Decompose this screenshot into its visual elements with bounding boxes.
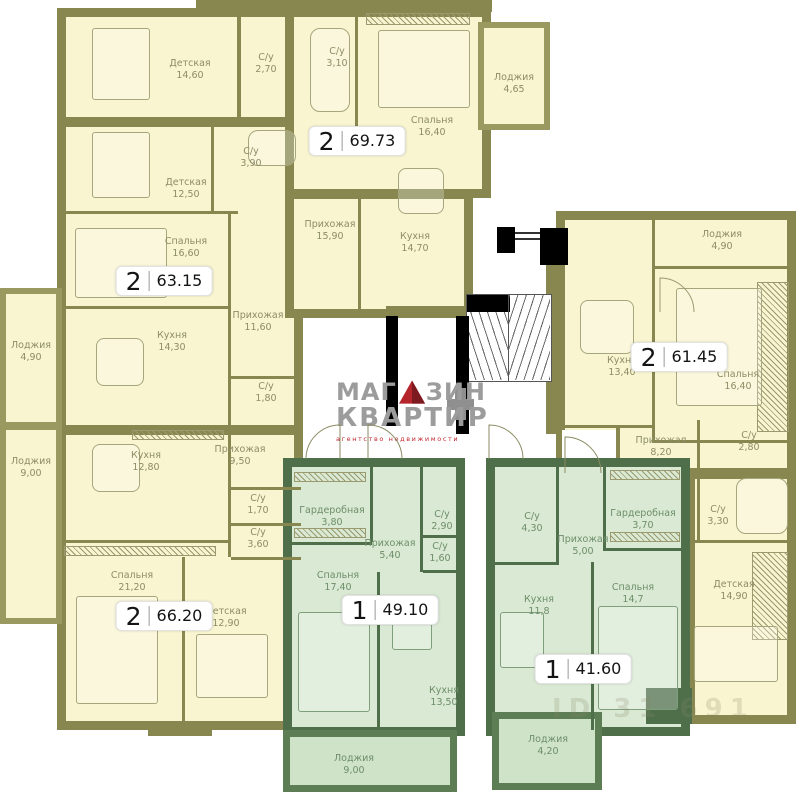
wall-partition (423, 535, 458, 538)
room-label-loggia: Лоджия9,00 (334, 753, 374, 777)
logo-text-zin: ЗИН (426, 380, 486, 404)
room-label-kitchen: Кухня13,50 (429, 685, 459, 709)
room-label-hallway: Прихожая9,50 (215, 444, 266, 468)
badge-divider (149, 606, 150, 626)
room-label-hallway: Прихожая15,90 (305, 219, 356, 243)
logo-line2: КВАРТИР (336, 404, 486, 433)
room-label-bathroom: С/у4,30 (521, 511, 542, 535)
badge-area: 61.45 (672, 349, 718, 365)
wall-partition (700, 471, 790, 474)
room-label-loggia: Лоджия4,20 (528, 734, 568, 758)
room-label-wardrobe: Гардеробная3,70 (610, 508, 676, 532)
wardrobe-hatch (294, 528, 366, 538)
furniture-bed (92, 28, 150, 100)
floor-plan: МАГ ЗИН КВАРТИР агентство недвижимости Д… (0, 0, 799, 800)
badge-area: 66.20 (157, 608, 203, 624)
room-label-hallway: Прихожая5,40 (365, 538, 416, 562)
apartment-badge-41-60[interactable]: 141.60 (535, 654, 632, 684)
wall-partition (603, 548, 687, 551)
furniture-table (96, 338, 144, 386)
room-label-hallway: Прихожая8,20 (636, 435, 687, 459)
furniture-bed (298, 612, 370, 712)
room-label-wardrobe: Гардеробная3,80 (299, 505, 365, 529)
badge-area: 69.73 (350, 133, 396, 149)
badge-room-count: 2 (319, 129, 335, 154)
room-label-kitchen: Кухня14,70 (400, 231, 430, 255)
room-label-bathroom: С/у2,80 (738, 430, 759, 454)
room-label-bathroom: С/у1,80 (255, 381, 276, 405)
furniture-bed (196, 634, 268, 698)
room-label-bedroom: Спальня21,20 (111, 570, 153, 594)
wall-partition (231, 523, 301, 526)
wall-partition (211, 127, 214, 213)
room-label-bathroom: С/у1,70 (247, 493, 268, 517)
apartment-badge-61-45[interactable]: 261.45 (631, 342, 728, 372)
badge-divider (149, 271, 150, 291)
loggia-9-00-left (0, 424, 62, 624)
badge-room-count: 2 (126, 269, 142, 294)
wall-partition (231, 487, 301, 490)
wardrobe-hatch (610, 470, 680, 480)
elevator-shaft-1 (497, 227, 515, 253)
wall-partition (493, 562, 559, 565)
room-label-kitchen: Кухня12,80 (131, 450, 161, 474)
wall-partition (420, 466, 423, 572)
stair-flight (467, 312, 508, 380)
badge-area: 49.10 (383, 602, 429, 618)
room-label-nursery: Детская12,50 (165, 177, 206, 201)
wall-partition (423, 570, 458, 573)
room-label-hallway: Прихожая5,00 (558, 534, 609, 558)
wardrobe-hatch (294, 472, 366, 482)
room-label-bathroom: С/у2,70 (255, 52, 276, 76)
wall-partition (66, 211, 238, 214)
furniture-table (398, 168, 444, 214)
badge-room-count: 1 (545, 657, 561, 682)
furniture-bathtub (736, 478, 788, 534)
badge-divider (568, 659, 569, 679)
room-label-bedroom: Спальня17,40 (317, 570, 359, 594)
room-label-bathroom: С/у3,10 (326, 46, 347, 70)
wall-partition (231, 557, 301, 560)
logo-line1: МАГ ЗИН (336, 380, 486, 404)
watermark: ID 31 691 (552, 694, 799, 724)
wall-partition (655, 266, 789, 269)
wall-partition (652, 220, 655, 440)
elevator-door-line (515, 238, 540, 240)
room-label-loggia: Лоджия4,65 (494, 72, 534, 96)
room-label-bathroom: С/у2,90 (431, 509, 452, 533)
furniture-bed (378, 30, 470, 108)
room-label-kitchen: Кухня14,30 (157, 330, 187, 354)
wardrobe-hatch (610, 532, 680, 542)
stair-divider (508, 295, 509, 381)
badge-divider (375, 600, 376, 620)
wardrobe-hatch (64, 546, 216, 556)
logo-text-mag: МАГ (336, 380, 397, 404)
room-label-nursery: Детская14,60 (169, 58, 210, 82)
badge-divider (342, 131, 343, 151)
room-label-bathroom: С/у3,90 (240, 146, 261, 170)
wall-partition (355, 17, 358, 129)
badge-area: 63.15 (157, 273, 203, 289)
wall-partition (66, 306, 228, 309)
room-label-kitchen: Кухня11,8 (524, 594, 554, 618)
furniture-bed (694, 626, 778, 682)
wardrobe-hatch (366, 13, 470, 25)
badge-area: 41.60 (576, 661, 622, 677)
badge-room-count: 1 (352, 598, 368, 623)
wall-partition (697, 420, 700, 542)
wall-partition (182, 557, 185, 723)
wall-partition (231, 376, 301, 379)
apartment-badge-63-15[interactable]: 263.15 (116, 266, 213, 296)
room-label-bathroom: С/у3,60 (247, 527, 268, 551)
wall-partition (695, 540, 790, 543)
furniture-bed (92, 132, 150, 198)
badge-room-count: 2 (641, 345, 657, 370)
logo-tagline: агентство недвижимости (336, 435, 486, 443)
wall-partition (237, 17, 241, 117)
furniture-bathtub (310, 28, 350, 112)
room-label-nursery: Детская14,90 (713, 579, 754, 603)
wall-partition (370, 466, 373, 542)
apartment-69-73-block-bottom (285, 190, 473, 318)
logo-magazin-kvartir: МАГ ЗИН КВАРТИР агентство недвижимости (336, 380, 486, 443)
furniture-table (580, 300, 634, 354)
wall (196, 0, 492, 12)
apartment-badge-66-20[interactable]: 266.20 (116, 601, 213, 631)
wardrobe-hatch (132, 430, 224, 440)
room-label-loggia: Лоджия4,90 (702, 229, 742, 253)
wall-partition (228, 211, 231, 427)
apartment-badge-69-73[interactable]: 269.73 (309, 126, 406, 156)
wall-partition (66, 540, 228, 543)
staircase-landing (467, 295, 510, 312)
room-label-loggia: Лоджия9,00 (11, 456, 51, 480)
room-label-bedroom: Спальня16,40 (411, 115, 453, 139)
wall-partition (565, 425, 655, 428)
badge-room-count: 2 (126, 604, 142, 629)
room-label-bedroom: Спальня16,40 (717, 369, 759, 393)
room-label-bedroom: Спальня14,7 (612, 582, 654, 606)
wall-partition (292, 542, 372, 545)
room-label-loggia: Лоджия4,90 (11, 340, 51, 364)
elevator-door-line (515, 232, 540, 234)
stair-flight (509, 295, 550, 380)
room-label-bathroom: С/у3,30 (707, 504, 728, 528)
elevator-shaft-2 (540, 228, 568, 265)
room-label-hallway: Прихожая11,60 (233, 310, 284, 334)
wall (148, 722, 212, 736)
badge-divider (664, 347, 665, 367)
apartment-badge-49-10[interactable]: 149.10 (342, 595, 439, 625)
wall-partition (358, 198, 361, 310)
room-label-bathroom: С/у1,60 (429, 541, 450, 565)
room-label-bedroom: Спальня16,60 (165, 236, 207, 260)
staircase (466, 294, 552, 382)
logo-house-icon (399, 380, 425, 404)
